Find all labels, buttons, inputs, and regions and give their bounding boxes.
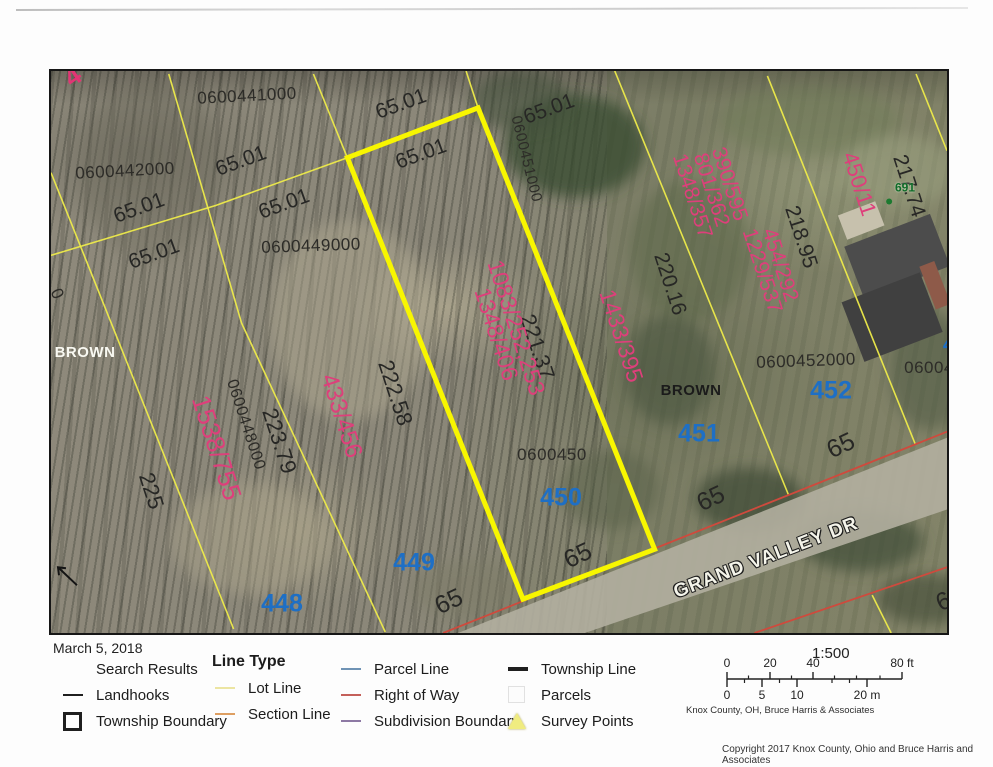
parcel-id-label: 0600441000: [197, 86, 297, 107]
scale-tick-label: 20: [763, 656, 776, 670]
none-symbol: [60, 660, 86, 678]
dimension-label: 222.58: [375, 358, 415, 428]
dimension-label: 220.16: [651, 250, 689, 317]
legend-row: Right of Way: [338, 682, 519, 708]
scale-bar: 1:500 0204080 ft 051020 m Knox County, O…: [700, 641, 940, 719]
square-faint-symbol: [505, 686, 531, 704]
parcel-id-label: 06004: [904, 360, 949, 376]
dash-thick-symbol: [505, 660, 531, 678]
dimension-label: 65.01: [521, 91, 577, 127]
legend-column: Line TypeLot LineSection Line: [212, 649, 331, 727]
legend-row: Lot Line: [212, 675, 331, 701]
legend-label: Line Type: [212, 653, 286, 671]
legend-column: Search ResultsLandhooksTownship Boundary: [60, 656, 227, 734]
lot-number-label: 448: [261, 593, 303, 616]
map-attribution: Knox County, OH, Bruce Harris & Associat…: [686, 705, 874, 716]
lot-number-label: 45: [943, 336, 949, 354]
dimension-label: 65.01: [373, 86, 429, 122]
legend-row: Township Line: [505, 656, 636, 682]
lot-number-label: 449: [393, 552, 435, 575]
scan-artifact-line: [16, 7, 968, 11]
scanned-map-page: 0600441000060044200006004490000600448000…: [0, 0, 993, 767]
legend-row: Township Boundary: [60, 708, 227, 734]
dash-symbol: [60, 686, 86, 704]
map-date: March 5, 2018: [53, 640, 143, 656]
triangle-symbol: [505, 712, 531, 730]
dash-symbol: [212, 679, 238, 697]
legend-row: Search Results: [60, 656, 227, 682]
addr-label: 691: [895, 182, 915, 193]
square-symbol: [60, 712, 86, 730]
parcel-id-label: 0: [49, 286, 66, 302]
dash-symbol: [338, 686, 364, 704]
copyright-notice: Copyright 2017 Knox County, Ohio and Bru…: [722, 744, 993, 766]
legend-label: Section Line: [248, 706, 331, 723]
lot-number-label: 450: [540, 487, 582, 510]
dash-symbol: [338, 660, 364, 678]
legend-label: Township Line: [541, 661, 636, 678]
dimension-label: 65.01: [213, 143, 269, 179]
dimension-label: 65.01: [393, 136, 449, 172]
owner-dark-label: BROWN: [661, 384, 722, 398]
scale-tick-label: 5: [759, 688, 766, 702]
map-label-layer: 0600441000060044200006004490000600448000…: [51, 71, 947, 633]
legend-label: Landhooks: [96, 687, 169, 704]
legend-label: Search Results: [96, 661, 198, 678]
scale-tick-label: 0: [724, 656, 731, 670]
deed-ref-label: 1433/395: [596, 287, 646, 385]
parcel-id-label: 0600452000: [756, 351, 856, 370]
parcel-id-label: 0600449000: [261, 236, 361, 255]
legend-column: Township LineParcelsSurvey Points: [505, 656, 636, 734]
dimension-label: 65: [694, 483, 729, 516]
map-viewport: 0600441000060044200006004490000600448000…: [49, 69, 949, 635]
street-label: GRAND VALLEY DR: [671, 515, 860, 602]
dimension-label: 65.01: [126, 236, 182, 272]
dimension-label: 65: [824, 430, 859, 463]
dimension-label: 65: [561, 540, 596, 573]
parcel-id-label: 0600450: [517, 447, 587, 463]
dimension-label: 65: [933, 583, 949, 616]
legend-row: Section Line: [212, 701, 331, 727]
dash-symbol: [212, 705, 238, 723]
deed-ref-label: 433/456: [317, 371, 365, 460]
legend-label: Right of Way: [374, 687, 459, 704]
deed-ref-label: 390/595 801/362 1348/357: [670, 139, 752, 240]
dimension-label: 65.01: [111, 190, 167, 226]
legend-row: Subdivision Boundary: [338, 708, 519, 734]
deed-ref-label: 450/11: [839, 150, 879, 219]
lot-number-label: 452: [810, 380, 852, 403]
legend-label: Survey Points: [541, 713, 634, 730]
legend-column: Parcel LineRight of WaySubdivision Bound…: [338, 656, 519, 734]
dimension-label: 65.01: [256, 186, 312, 222]
parcel-id-label: 0600451000: [509, 114, 544, 203]
scale-tick-label: 40: [806, 656, 819, 670]
legend-label: Parcel Line: [374, 661, 449, 678]
lot-number-label: 451: [678, 423, 720, 446]
legend-label: Lot Line: [248, 680, 301, 697]
survey-mark-label: 4: [60, 69, 86, 91]
scale-tick-label: 80 ft: [890, 656, 913, 670]
legend-row: Parcels: [505, 682, 636, 708]
owner-light-label: BROWN: [55, 346, 116, 360]
legend-label: Township Boundary: [96, 713, 227, 730]
legend-label: Subdivision Boundary: [374, 713, 519, 730]
dimension-label: 225: [136, 470, 167, 511]
parcel-id-label: 0600442000: [75, 161, 175, 182]
scale-tick-label: 0: [724, 688, 731, 702]
dimension-label: 65: [432, 586, 467, 619]
legend-row: Landhooks: [60, 682, 227, 708]
legend-row: Survey Points: [505, 708, 636, 734]
legend-label: Parcels: [541, 687, 591, 704]
legend-row: Parcel Line: [338, 656, 519, 682]
scale-tick-label: 20 m: [854, 688, 881, 702]
scale-tick-label: 10: [790, 688, 803, 702]
scale-bar-ticks: [700, 671, 930, 689]
dash-symbol: [338, 712, 364, 730]
legend-row: Line Type: [212, 649, 331, 675]
